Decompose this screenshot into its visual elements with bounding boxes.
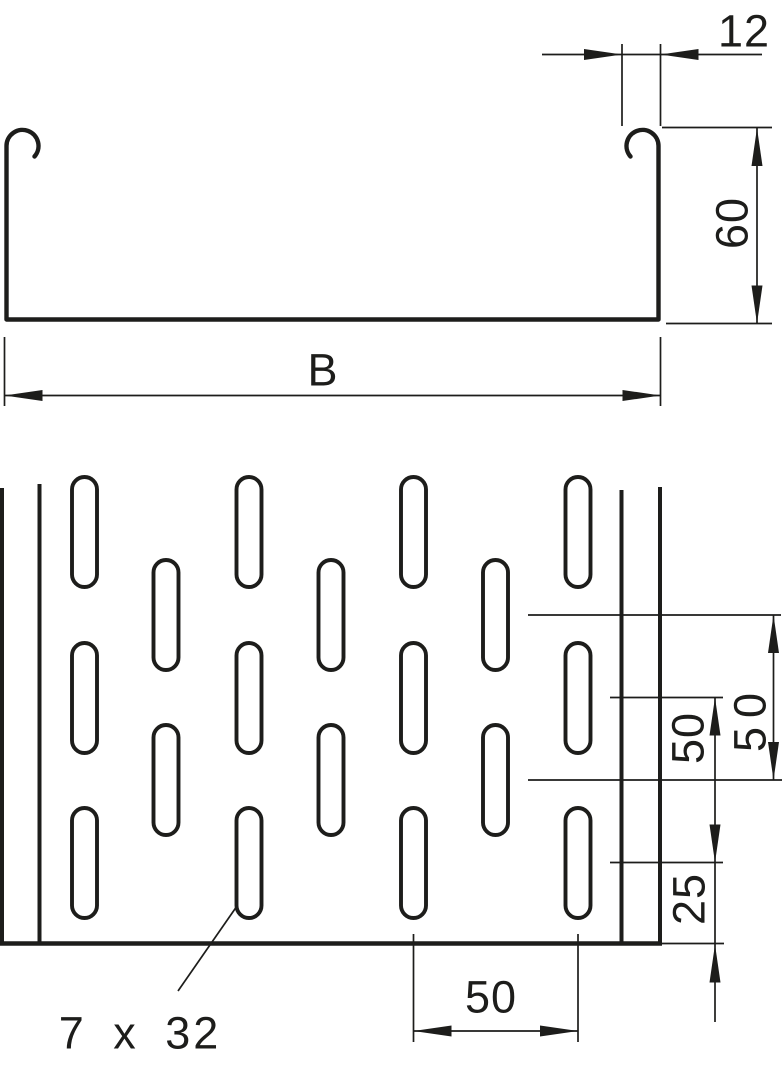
arrowhead-down-icon [710, 825, 721, 863]
slot-hole [566, 808, 591, 918]
slot-hole [72, 477, 97, 587]
slot-pattern [72, 477, 591, 918]
arrowhead-left-icon [414, 1026, 452, 1037]
slot-hole [154, 560, 179, 670]
slot-hole [72, 808, 97, 918]
slot-hole [319, 725, 344, 835]
arrowhead-left-icon [661, 49, 699, 60]
dim-label-edge-distance: 25 [664, 873, 715, 925]
dimension-main-row-pitch: 50 [610, 698, 723, 1023]
slot-hole [401, 643, 426, 753]
dimension-flange-width: 12 [542, 6, 770, 127]
cable-tray-technical-drawing: 12 60 B [0, 0, 784, 1066]
dimension-width-b: B [5, 337, 661, 406]
slot-hole [237, 643, 262, 753]
plan-view: 50 50 25 [0, 477, 782, 1059]
plan-borders [0, 484, 662, 944]
dim-label-flange-width: 12 [718, 6, 770, 57]
arrowhead-right-icon [540, 1026, 578, 1037]
dimension-column-pitch: 50 [414, 934, 579, 1042]
slot-size-callout: 7 x 32 [59, 906, 237, 1059]
slot-hole [154, 725, 179, 835]
dim-label-offset-row-pitch: 50 [725, 684, 776, 752]
technical-drawing-page: 12 60 B [0, 0, 784, 1066]
arrowhead-left-icon [5, 390, 43, 401]
leader-line [178, 906, 237, 991]
slot-hole [319, 560, 344, 670]
slot-size-label: 7 x 32 [59, 1008, 222, 1059]
arrowhead-up-icon [752, 128, 763, 166]
arrowhead-up-icon [710, 945, 721, 983]
arrowhead-up-icon [768, 615, 779, 653]
slot-hole [566, 643, 591, 753]
dim-label-width: B [307, 345, 338, 396]
dim-label-main-row-pitch: 50 [663, 712, 714, 764]
section-view: 12 60 B [5, 6, 773, 407]
tray-profile-outline [6, 130, 658, 320]
slot-hole [237, 808, 262, 918]
slot-hole [72, 643, 97, 753]
slot-hole [401, 808, 426, 918]
dimension-height: 60 [662, 128, 772, 324]
slot-hole [566, 477, 591, 587]
arrowhead-right-icon [584, 49, 622, 60]
dim-label-height: 60 [707, 197, 758, 249]
slot-hole [237, 477, 262, 587]
dim-label-column-pitch: 50 [465, 972, 517, 1023]
arrowhead-right-icon [623, 390, 661, 401]
slot-hole [483, 560, 508, 670]
slot-hole [483, 725, 508, 835]
slot-hole [401, 477, 426, 587]
arrowhead-down-icon [752, 286, 763, 324]
